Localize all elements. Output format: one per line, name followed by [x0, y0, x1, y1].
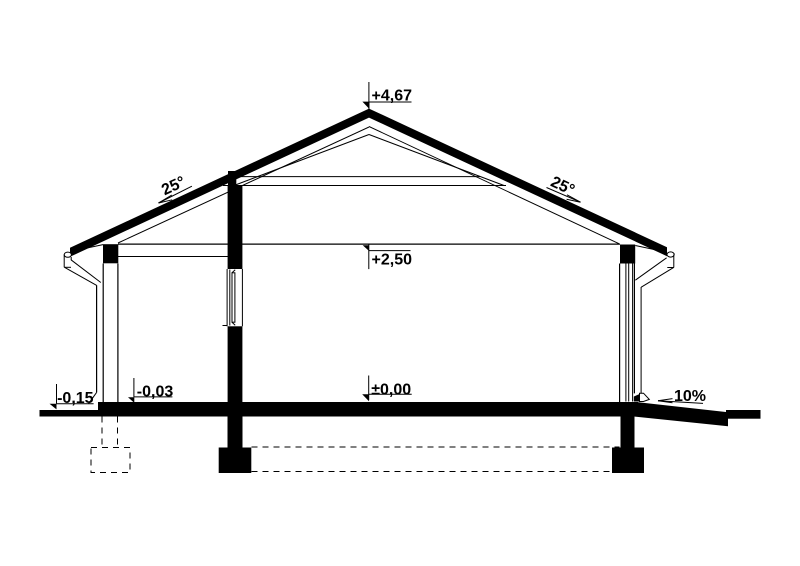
svg-text:±0,00: ±0,00 [371, 381, 411, 398]
svg-text:-0,03: -0,03 [137, 384, 174, 401]
svg-text:+2,50: +2,50 [372, 251, 413, 268]
svg-text:-0,15: -0,15 [57, 390, 94, 407]
svg-text:+4,67: +4,67 [372, 88, 413, 105]
